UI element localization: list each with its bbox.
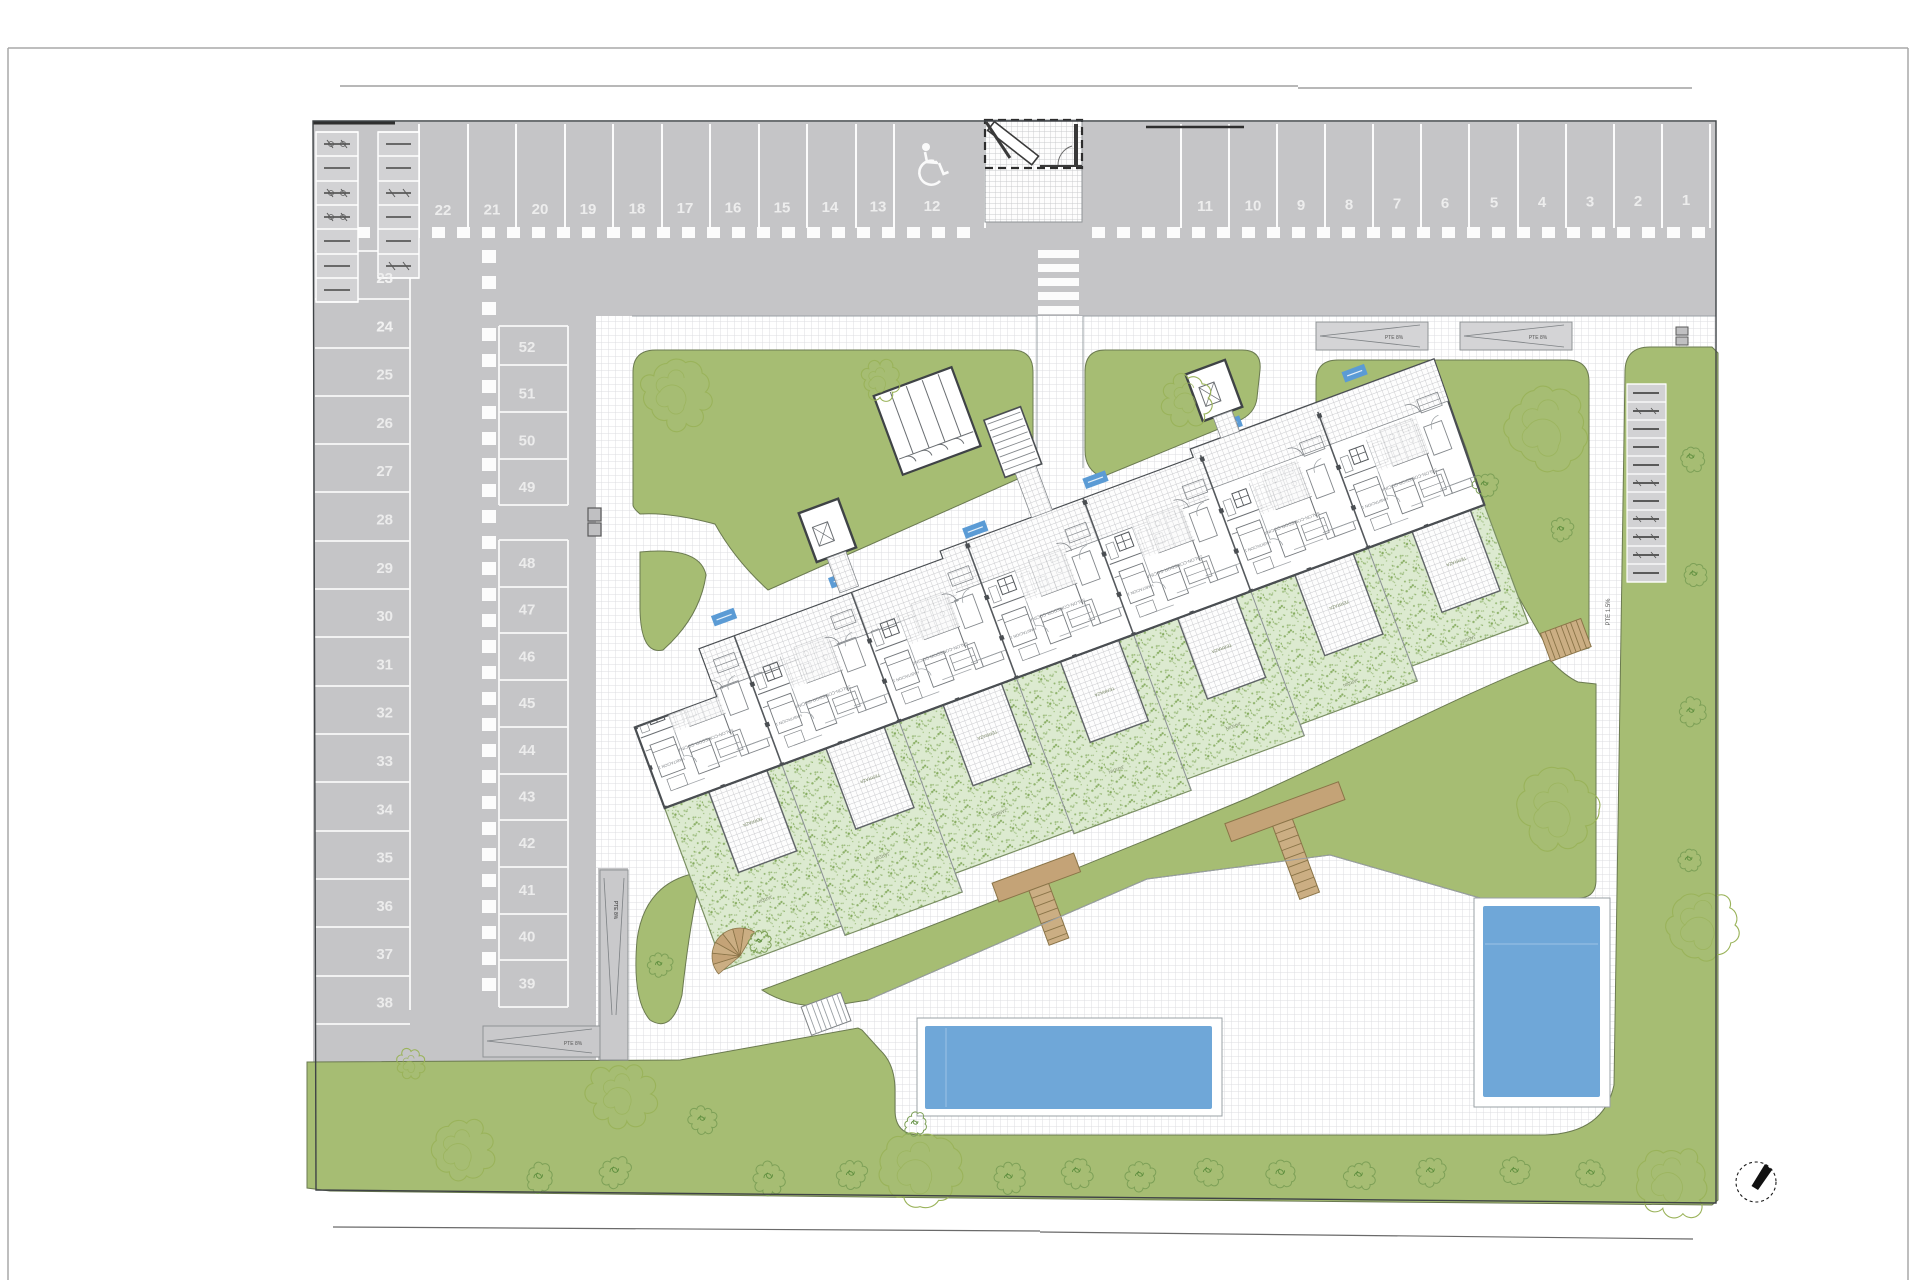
svg-text:PTE 1.5%: PTE 1.5%: [1606, 598, 1612, 626]
svg-text:52: 52: [519, 339, 536, 356]
svg-text:39: 39: [519, 975, 536, 992]
svg-text:32: 32: [376, 705, 393, 722]
svg-text:51: 51: [519, 386, 536, 403]
svg-text:5: 5: [1490, 195, 1498, 212]
svg-text:18: 18: [629, 200, 646, 217]
svg-text:43: 43: [519, 789, 536, 806]
svg-text:50: 50: [519, 432, 536, 449]
svg-text:45: 45: [519, 695, 536, 712]
svg-text:PTE 8%: PTE 8%: [564, 1041, 583, 1047]
svg-text:27: 27: [376, 463, 393, 480]
svg-text:41: 41: [519, 882, 536, 899]
svg-text:46: 46: [519, 648, 536, 665]
svg-text:28: 28: [376, 512, 393, 529]
svg-text:25: 25: [376, 367, 393, 384]
svg-text:30: 30: [376, 608, 393, 625]
svg-text:22: 22: [435, 202, 452, 219]
svg-text:1: 1: [1682, 192, 1690, 209]
svg-text:15: 15: [774, 199, 791, 216]
svg-text:24: 24: [376, 318, 393, 335]
svg-text:3: 3: [1586, 193, 1594, 210]
svg-text:35: 35: [376, 850, 393, 867]
svg-text:PTE 8%: PTE 8%: [1529, 335, 1548, 341]
svg-text:13: 13: [870, 199, 887, 216]
svg-text:PTE 8%: PTE 8%: [1385, 335, 1404, 341]
svg-text:36: 36: [376, 898, 393, 915]
svg-text:21: 21: [484, 202, 501, 219]
svg-text:12: 12: [924, 198, 941, 215]
svg-text:44: 44: [519, 742, 536, 759]
svg-text:6: 6: [1441, 195, 1449, 212]
svg-text:14: 14: [822, 199, 839, 216]
svg-text:PTE 8%: PTE 8%: [612, 901, 618, 920]
svg-text:26: 26: [376, 415, 393, 432]
svg-text:47: 47: [519, 602, 536, 619]
svg-text:8: 8: [1345, 196, 1353, 213]
svg-text:37: 37: [376, 946, 393, 963]
svg-text:20: 20: [532, 201, 549, 218]
svg-text:23: 23: [376, 270, 393, 287]
svg-text:42: 42: [519, 835, 536, 852]
svg-text:19: 19: [580, 201, 597, 218]
svg-text:40: 40: [519, 929, 536, 946]
svg-text:38: 38: [376, 995, 393, 1012]
svg-text:48: 48: [519, 555, 536, 572]
svg-text:11: 11: [1197, 198, 1213, 215]
svg-text:29: 29: [376, 560, 393, 577]
svg-text:16: 16: [725, 200, 742, 217]
svg-text:4: 4: [1538, 194, 1547, 211]
svg-text:31: 31: [376, 656, 393, 673]
svg-text:9: 9: [1297, 197, 1305, 214]
svg-text:7: 7: [1393, 196, 1401, 213]
svg-text:17: 17: [677, 200, 694, 217]
svg-text:10: 10: [1245, 197, 1262, 214]
svg-text:34: 34: [376, 801, 393, 818]
svg-text:33: 33: [376, 753, 393, 770]
svg-text:2: 2: [1634, 193, 1642, 210]
svg-text:49: 49: [519, 479, 536, 496]
